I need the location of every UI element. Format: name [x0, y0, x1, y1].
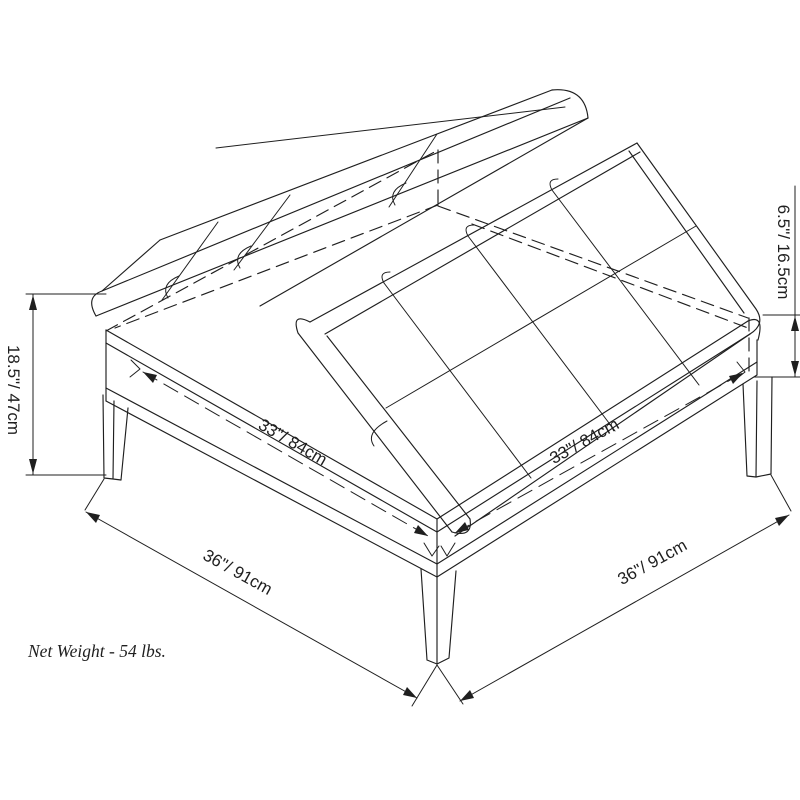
front-lid-cross-cap-1 — [382, 272, 390, 283]
front-lid-grid-cross-2 — [468, 236, 615, 431]
dim-height-right-label: 6.5"/ 16.5cm — [774, 205, 793, 300]
dim-base-right-label: 36"/ 91cm — [615, 535, 691, 588]
hidden-deck-back-left-rim — [106, 150, 438, 331]
back-lid-band-outer — [96, 118, 588, 316]
net-weight-note: Net Weight - 54 lbs. — [27, 641, 166, 661]
dim-top-left-line — [143, 372, 428, 536]
dim-top-right-label: 33"/ 84cm — [547, 414, 623, 467]
dim-top-left-chevron — [130, 360, 140, 377]
back-lid-end-edge — [260, 118, 588, 306]
rail-bottom-upper — [106, 362, 757, 564]
dim-base-left-ext-front — [412, 665, 437, 706]
back-lid-far-edge — [160, 90, 552, 240]
dim-top-left-label: 33"/ 84cm — [255, 415, 330, 469]
back-lid-corner-cap — [552, 90, 588, 118]
back-lid-seam-line-1 — [162, 222, 218, 300]
back-lid-left-cap — [92, 291, 102, 316]
hidden-hinge-right — [438, 206, 748, 318]
dim-base-left-arrow-end — [403, 687, 417, 698]
leg-front — [421, 569, 456, 664]
dim-height-left: 18.5"/ 47cm — [4, 294, 106, 475]
dim-top-left-arrow-start — [143, 372, 157, 383]
dim-height-left-arrow-up — [29, 295, 37, 310]
front-lid-band-seam-arc — [371, 421, 387, 446]
back-lid-left-end-edge — [102, 240, 160, 291]
ottoman-base — [103, 320, 772, 664]
dim-base-right-arrow-start — [460, 690, 474, 701]
dim-height-left-arrow-down — [29, 459, 37, 474]
front-lid-top-left-edge-outer — [310, 143, 637, 322]
dim-base-left: 36"/ 91cm — [85, 479, 437, 706]
dim-base-right-line — [460, 515, 789, 701]
diagram-canvas: 18.5"/ 47cm 6.5"/ 16.5cm 33"/ 84cm 33"/ … — [0, 0, 800, 800]
dim-top-left-arrow-end — [414, 525, 428, 536]
front-lid-grid-cross-1 — [384, 283, 531, 478]
deck-rim-corner-cap — [748, 320, 760, 340]
dim-height-left-label: 18.5"/ 47cm — [4, 345, 23, 435]
hidden-hinge-left — [115, 205, 438, 328]
deck-rim-top — [106, 321, 748, 519]
back-lid-long-seam — [216, 107, 565, 148]
furniture-dimension-diagram: 18.5"/ 47cm 6.5"/ 16.5cm 33"/ 84cm 33"/ … — [0, 0, 800, 800]
dim-base-right-ext-outer — [771, 475, 791, 511]
dim-base-right-ext-front — [437, 665, 463, 704]
dim-height-right-arrow-down — [791, 361, 799, 376]
front-lid-grid-long — [386, 226, 696, 408]
front-lid-right-edge-outer — [637, 143, 760, 334]
deck-rim-second — [106, 334, 750, 532]
dim-top-right: 33"/ 84cm — [455, 362, 745, 533]
dim-top-right-line — [455, 373, 743, 533]
dim-base-left-ext-outer — [85, 479, 104, 510]
leg-right — [743, 377, 772, 477]
dim-top-left: 33"/ 84cm — [130, 360, 455, 556]
front-lid-left-cap — [296, 319, 310, 333]
dim-base-right: 36"/ 91cm — [437, 475, 791, 704]
leg-left — [103, 395, 128, 480]
front-lid — [296, 143, 760, 536]
dim-height-right: 6.5"/ 16.5cm — [754, 186, 800, 377]
dim-base-left-arrow-start — [86, 512, 100, 523]
dim-base-left-label: 36"/ 91cm — [200, 545, 276, 598]
back-lid-seam-line-3 — [389, 134, 437, 207]
dim-height-right-arrow-up — [791, 316, 799, 331]
dim-base-right-arrow-end — [775, 515, 789, 526]
front-lid-band-inner — [327, 336, 470, 519]
